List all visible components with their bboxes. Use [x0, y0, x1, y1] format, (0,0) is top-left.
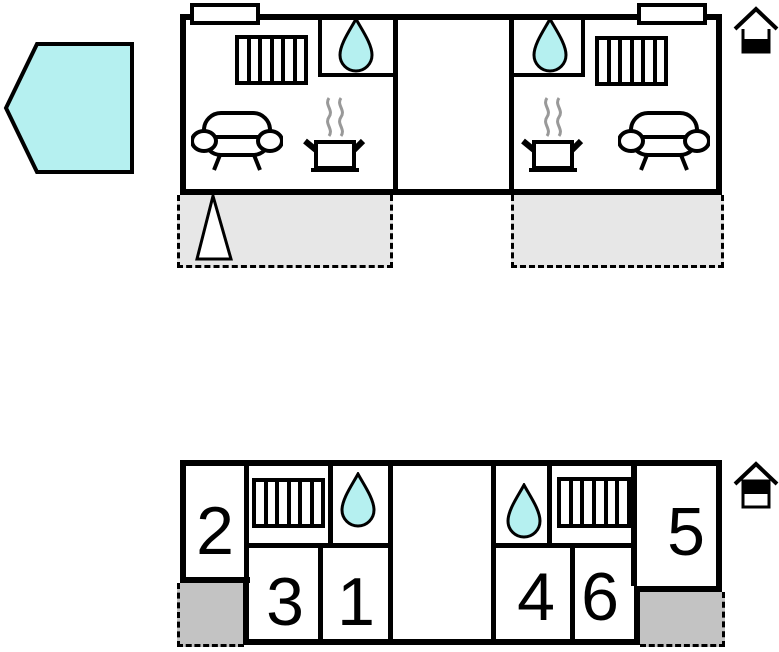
- sofa-icon: [191, 110, 283, 172]
- radiator-icon: [252, 478, 325, 528]
- upper-bath-left-wall-bottom: [318, 73, 398, 77]
- radiator-icon: [557, 477, 631, 528]
- room-5-label: 5: [667, 498, 705, 566]
- house-upper-floor-icon: [733, 461, 779, 509]
- step-wall-left-side: [243, 577, 249, 645]
- door-marker-right: [637, 3, 707, 25]
- water-drop-icon: [504, 483, 544, 539]
- room-5-wall: [631, 460, 637, 586]
- door-marker-left: [190, 3, 260, 25]
- wall-room3-room1: [318, 543, 323, 645]
- tree-triangle-icon: [194, 194, 234, 262]
- sofa-icon: [618, 110, 710, 172]
- step-wall-right-side: [634, 586, 640, 645]
- upper-bath-left-wall: [318, 14, 322, 77]
- wall-radiator-drop-left: [328, 460, 333, 548]
- cooking-pot-icon: [302, 92, 366, 176]
- floor-plan-canvas: 2 3 1 4 6 5: [0, 0, 779, 652]
- upper-bath-right-wall: [581, 14, 585, 77]
- house-ground-floor-icon: [733, 6, 779, 54]
- step-wall-right-top: [634, 586, 722, 592]
- lower-corridor-wall-right: [491, 460, 496, 645]
- radiator-icon: [595, 36, 668, 86]
- room-4-label: 4: [517, 563, 555, 631]
- water-drop-icon: [530, 17, 570, 73]
- wall-room4-room6: [570, 543, 575, 645]
- porch-left: [177, 583, 244, 647]
- pentagon-icon: [0, 40, 138, 176]
- room-3-label: 3: [266, 568, 304, 636]
- step-wall-left-top: [180, 577, 250, 583]
- room-2-label: 2: [196, 497, 234, 565]
- upper-bath-right-wall-bottom: [509, 73, 585, 77]
- lower-corridor-wall-left: [388, 460, 393, 645]
- radiator-icon: [235, 35, 308, 85]
- upper-corridor-wall-right: [509, 14, 514, 195]
- cooking-pot-icon: [520, 92, 584, 176]
- porch-right: [640, 592, 725, 647]
- h-wall-right: [491, 543, 637, 548]
- wall-drop-radiator-right: [547, 460, 552, 548]
- terrace-right: [511, 195, 724, 268]
- water-drop-icon: [336, 17, 376, 73]
- room-6-label: 6: [581, 563, 619, 631]
- water-drop-icon: [338, 472, 378, 528]
- room-2-wall: [244, 460, 249, 583]
- upper-corridor-wall-left: [393, 14, 398, 195]
- room-1-label: 1: [337, 568, 375, 636]
